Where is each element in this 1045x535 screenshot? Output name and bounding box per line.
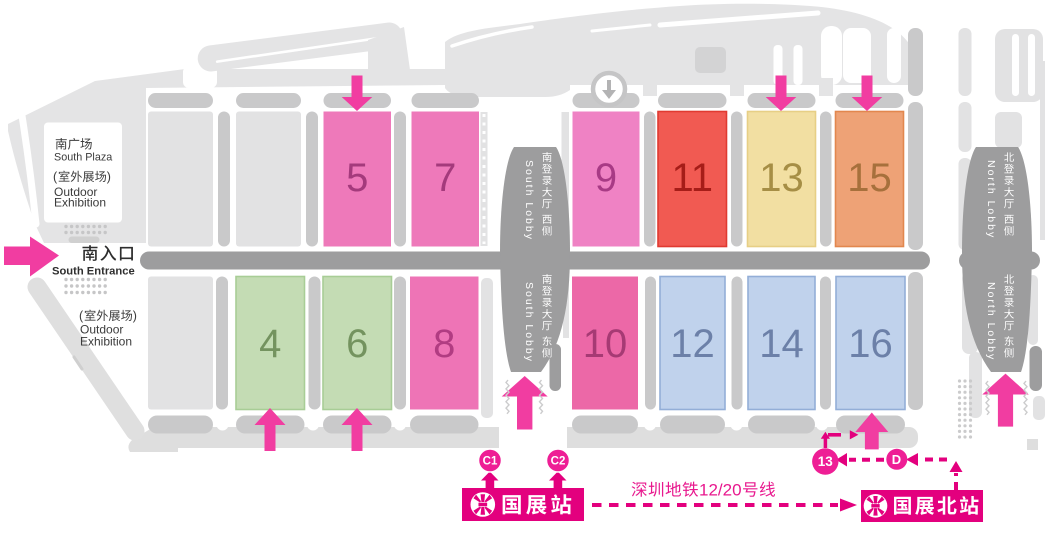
svg-text:14: 14 xyxy=(759,322,804,366)
svg-text:(: ( xyxy=(79,309,84,323)
svg-text:4: 4 xyxy=(259,322,281,366)
svg-text:10: 10 xyxy=(583,322,628,366)
svg-text:Exhibition: Exhibition xyxy=(54,196,106,210)
svg-text:12/20: 12/20 xyxy=(699,481,742,500)
svg-text:6: 6 xyxy=(346,322,368,366)
svg-text:13: 13 xyxy=(759,156,804,200)
svg-text:North Lobby: North Lobby xyxy=(985,160,997,239)
svg-text:South Plaza: South Plaza xyxy=(54,152,112,164)
svg-text:11: 11 xyxy=(671,156,713,200)
svg-text:13: 13 xyxy=(818,454,834,469)
svg-text:South Lobby: South Lobby xyxy=(523,282,535,363)
svg-text:15: 15 xyxy=(847,156,892,200)
svg-text:9: 9 xyxy=(595,156,617,200)
svg-text:C2: C2 xyxy=(551,456,566,468)
svg-text:C1: C1 xyxy=(483,456,498,468)
svg-text:8: 8 xyxy=(433,322,455,366)
svg-text:South Lobby: South Lobby xyxy=(523,160,535,241)
svg-text:North Lobby: North Lobby xyxy=(985,282,997,361)
svg-text:12: 12 xyxy=(670,322,715,366)
svg-text:D: D xyxy=(892,452,901,467)
svg-text:5: 5 xyxy=(346,156,368,200)
svg-text:Exhibition: Exhibition xyxy=(80,335,132,349)
svg-text:): ) xyxy=(133,309,137,323)
svg-text:South Entrance: South Entrance xyxy=(52,266,135,278)
svg-text:7: 7 xyxy=(434,156,456,200)
svg-text:): ) xyxy=(107,170,111,184)
svg-text:16: 16 xyxy=(848,322,893,366)
